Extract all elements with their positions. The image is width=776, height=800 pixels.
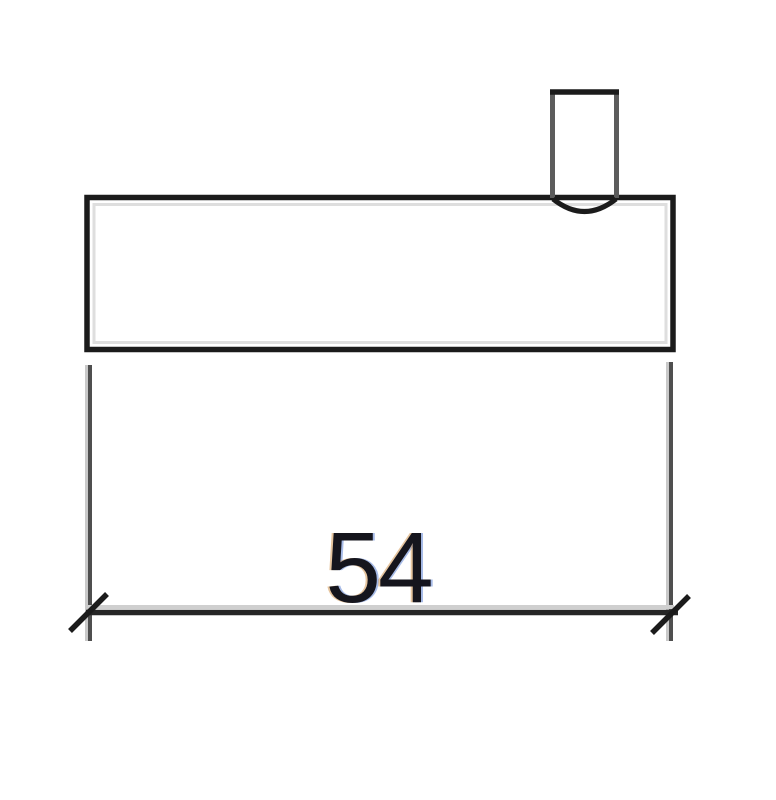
body-rect <box>87 198 673 350</box>
technical-drawing <box>0 0 776 800</box>
dimension-label: 54 <box>278 518 478 618</box>
part-outline <box>87 92 673 350</box>
drawing-canvas: 54 <box>0 0 776 800</box>
